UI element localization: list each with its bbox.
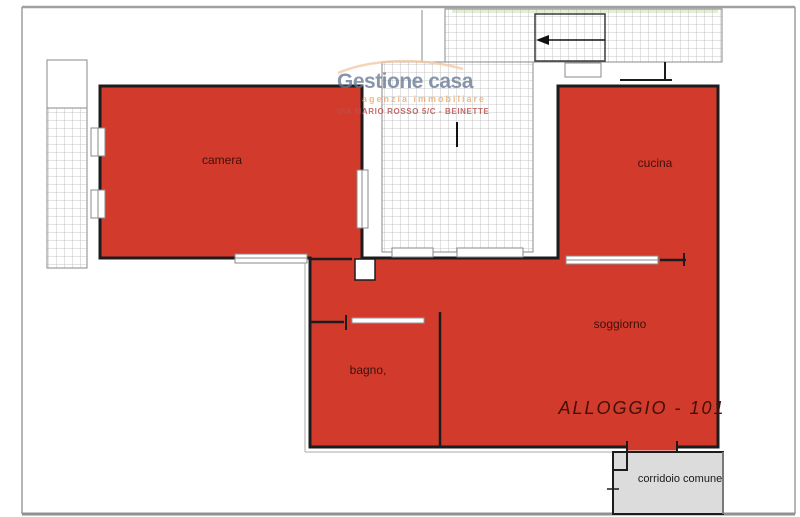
top-terrace-hatch	[445, 9, 722, 62]
left-balcony-landing	[47, 60, 87, 108]
hall-door-notch	[355, 259, 375, 280]
floor-plan-drawing: camera cucina soggiorno bagno, ALLOGGIO …	[0, 0, 800, 517]
bagno-door-leaf	[352, 318, 424, 323]
corridor-step	[613, 452, 627, 470]
cucina-top-window	[565, 63, 601, 77]
label-unit-number: ALLOGGIO - 101	[557, 398, 725, 418]
left-balcony-hatch	[47, 108, 87, 268]
label-camera: camera	[202, 153, 242, 167]
floor-plan-page: camera cucina soggiorno bagno, ALLOGGIO …	[0, 0, 800, 517]
label-bagno: bagno,	[350, 363, 387, 377]
label-corridor: corridoio comune	[638, 473, 722, 485]
central-terrace-hatch	[382, 62, 533, 252]
soggiorno-terrace-window-2	[457, 248, 523, 257]
label-cucina: cucina	[638, 156, 673, 170]
soggiorno-terrace-window-1	[392, 248, 433, 257]
label-soggiorno: soggiorno	[594, 317, 647, 331]
